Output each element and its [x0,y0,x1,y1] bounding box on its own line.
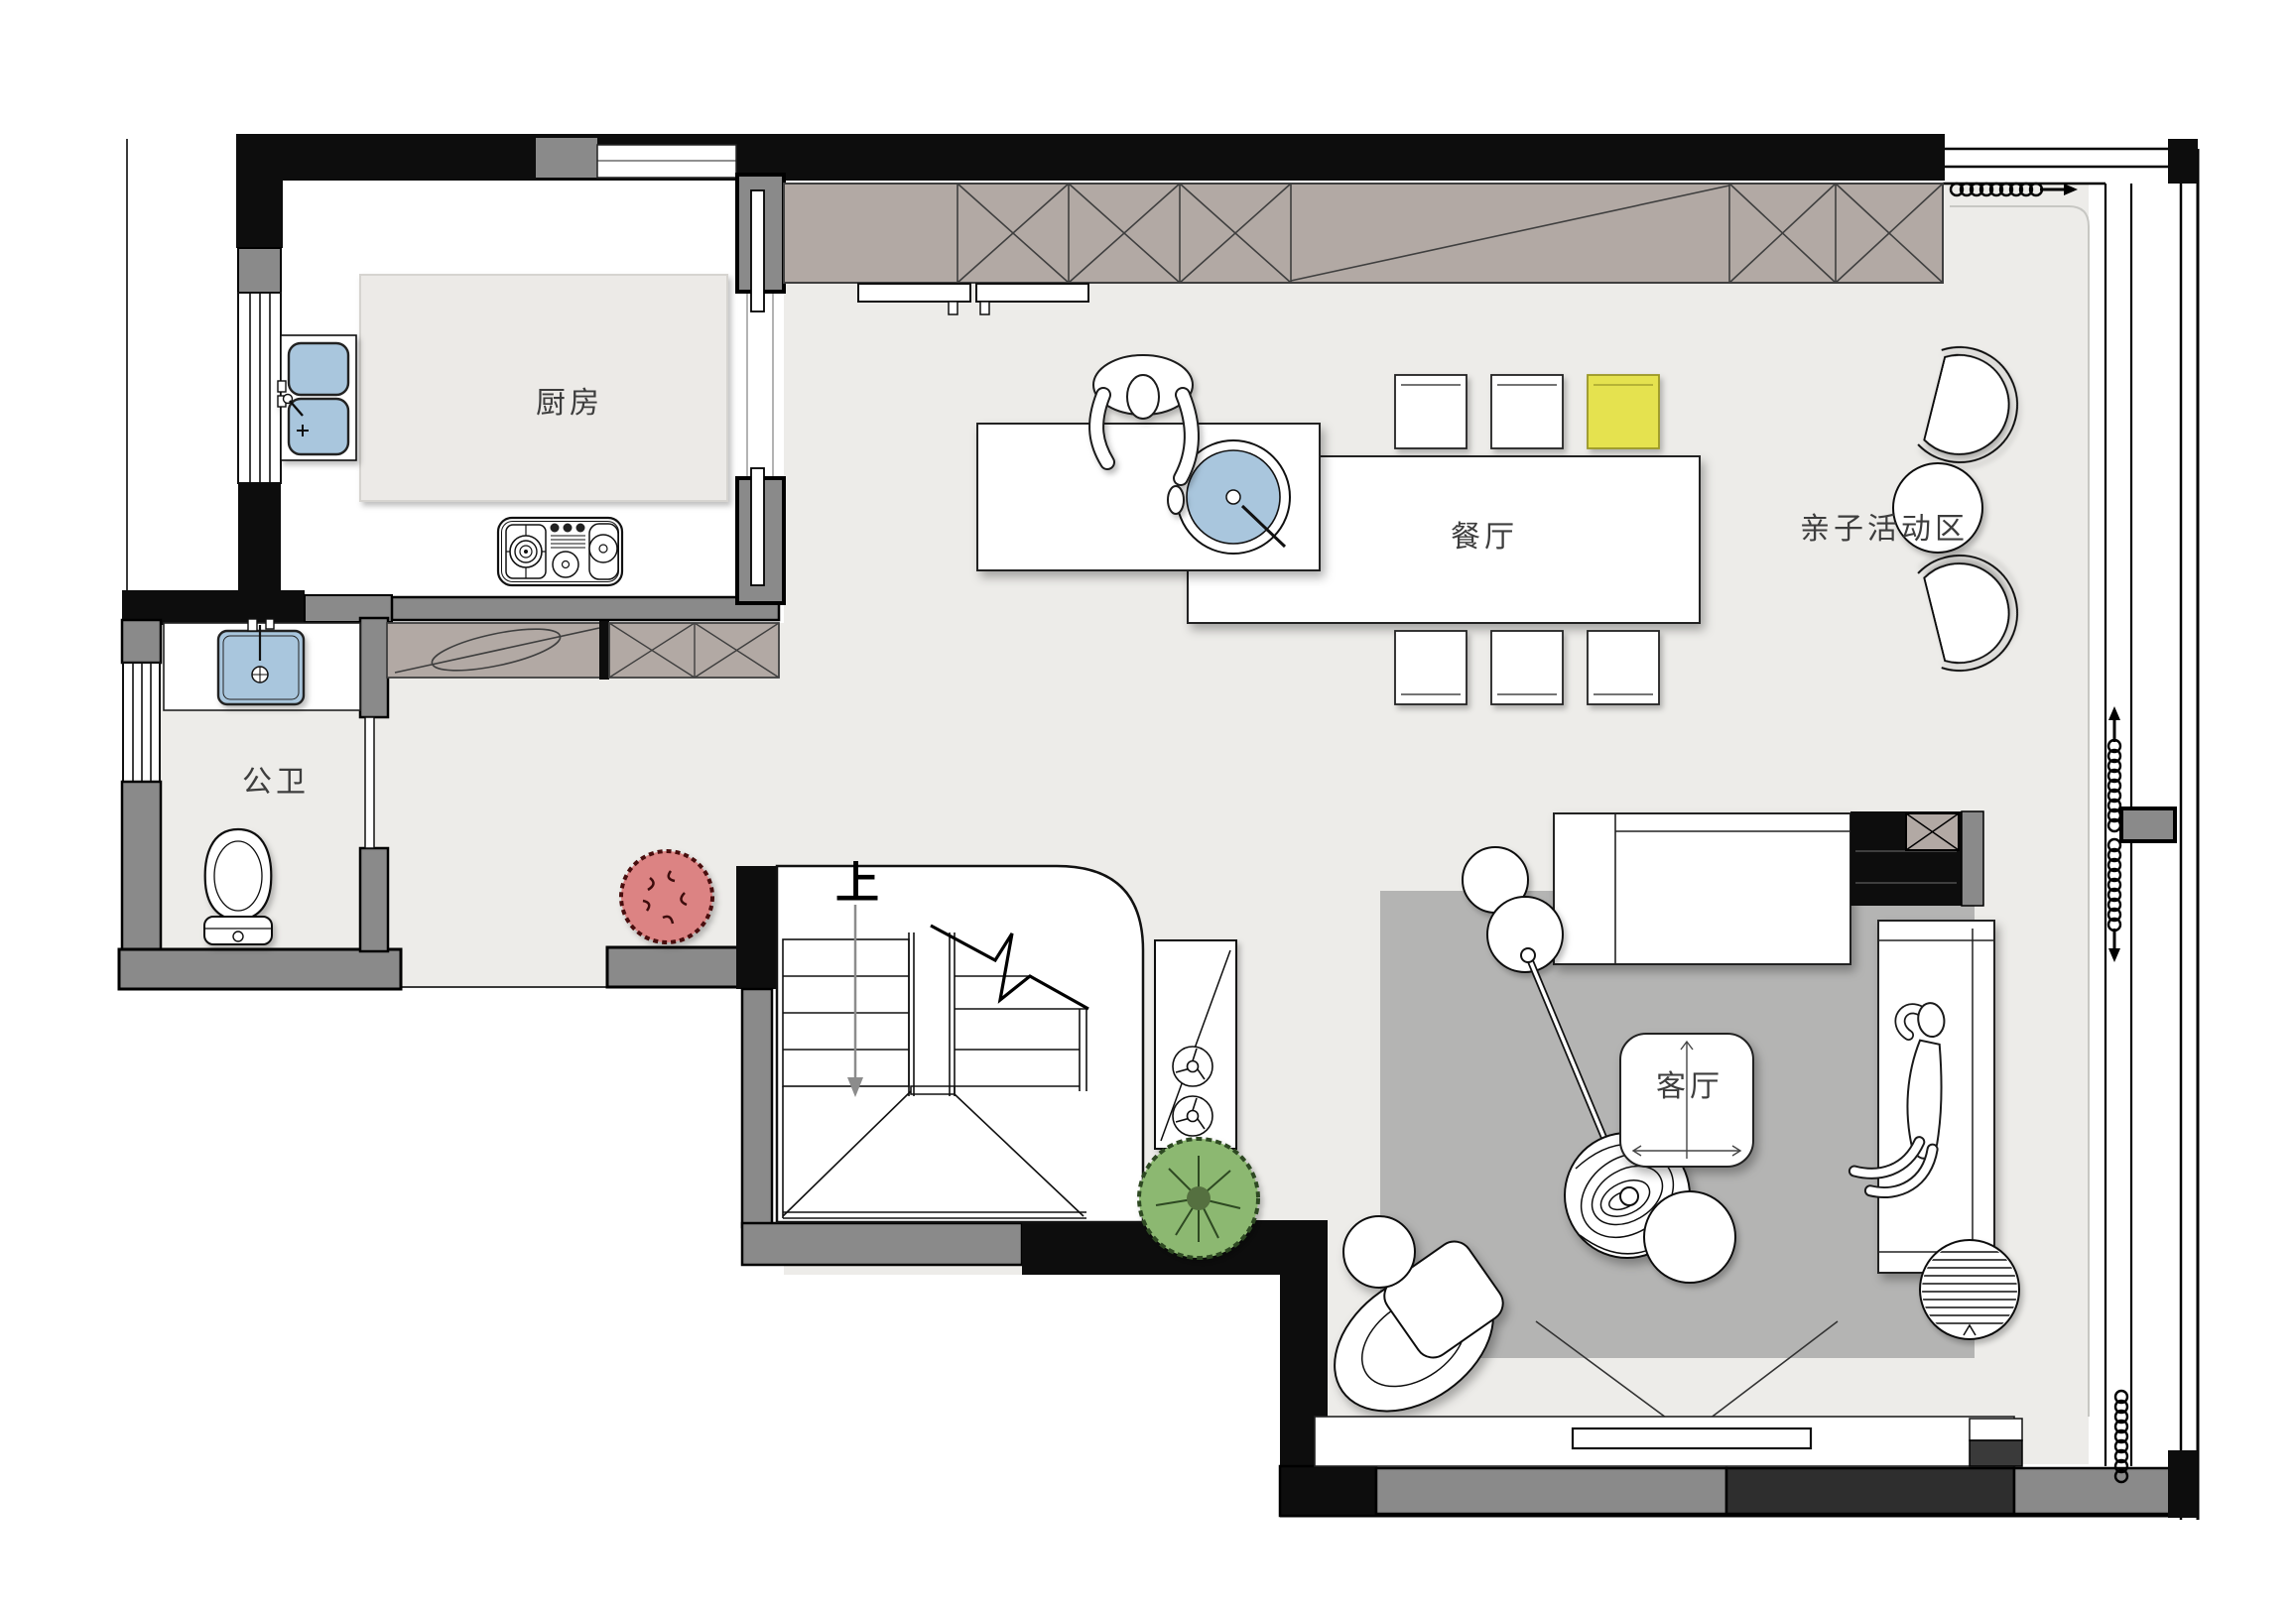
right-wall-bottom-block [2168,1450,2198,1518]
stair-console [1155,940,1236,1149]
outside-lower-left [119,987,742,1614]
daybed [1554,813,1850,964]
bath-left-lower [122,782,161,950]
bath-left-pier [122,620,161,663]
bathroom-bottom-wall [119,949,401,989]
kitchen-label: 厨房 [536,387,603,420]
hall-cabinets [387,621,779,680]
bathroom-window [123,663,160,782]
top-wall-gray-segment [536,138,597,178]
kitchen-bottom-wall [392,597,779,620]
bath-door-pier-bottom [360,848,388,951]
kitchen-pocket-door [737,175,784,603]
stairs-up-label: 上 [835,858,879,909]
toilet-icon [204,829,272,944]
door-slit [751,468,764,585]
floor-plan-svg: 厨房 公卫 [0,0,2296,1614]
right-wall-mid-pier [2121,808,2175,841]
activity-label: 亲子活动区 [1800,513,1969,546]
door-slit [751,190,764,311]
dining-chairs-bottom [1395,631,1659,704]
living-label: 客厅 [1656,1070,1723,1103]
kitchen-window [238,293,281,483]
top-wall [236,134,1945,181]
fireplace-cabinet [1850,811,1983,906]
left-wall-gray [238,248,281,293]
outside-below-stairs [742,1275,1283,1614]
left-wall-pier [236,134,283,248]
red-plant-icon [621,851,712,942]
stove-icon [498,518,622,585]
pouf [1644,1191,1735,1283]
green-plant-icon [1139,1139,1258,1258]
fan-icon [1173,1096,1212,1136]
bottom-wall [1280,1466,2181,1516]
curtain-coil-icon [2108,740,2120,831]
kitchen-room: 厨房 [278,275,727,585]
kitchen-sink-icon [278,335,356,460]
curtain-coil-icon [2108,839,2120,931]
bathroom-label: 公卫 [242,766,310,799]
stair-bottom-wall [742,1223,1022,1265]
fan-icon [1173,1047,1212,1086]
dining-chairs-top [1395,375,1659,448]
bathroom-sink-icon [164,619,360,710]
right-wall-top-block [2168,139,2198,184]
tv-panel [1573,1428,1811,1448]
hall-bottom-wall [607,947,742,987]
cabinet-divider [599,621,609,680]
left-wall-lower [238,483,281,595]
stair-wall-pier [736,866,777,989]
floor-plan-canvas: 厨房 公卫 [0,0,2296,1614]
bath-door-pier-top [360,618,388,717]
stair-left-wall [742,989,772,1227]
yellow-dining-chair [1588,375,1659,448]
dining-label: 餐厅 [1451,521,1518,554]
bathroom-door-leaf [365,717,374,848]
